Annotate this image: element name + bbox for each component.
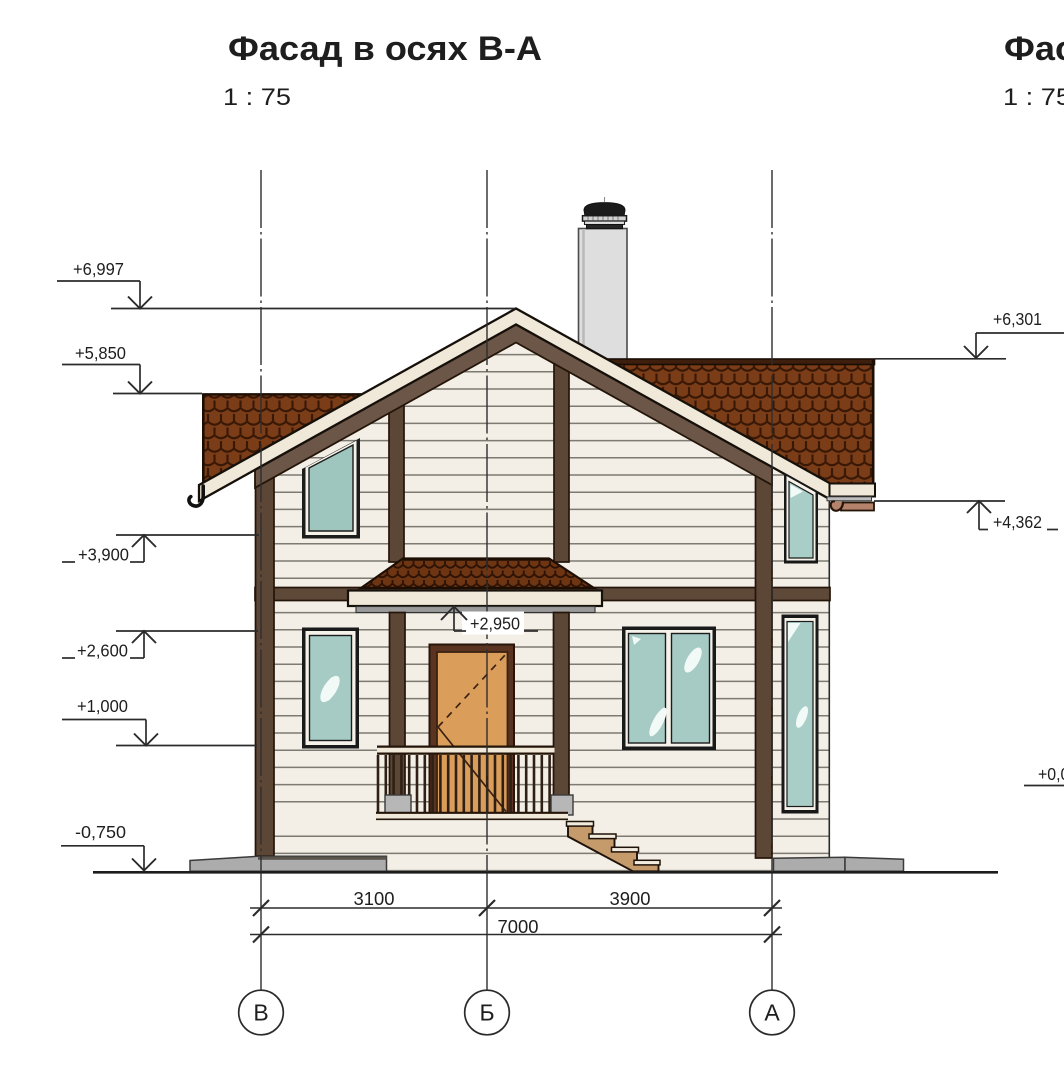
svg-text:+0,000: +0,000 [1038, 764, 1064, 784]
svg-text:3900: 3900 [610, 889, 651, 909]
svg-text:+3,900: +3,900 [78, 545, 129, 565]
svg-text:3100: 3100 [354, 889, 395, 909]
svg-text:-0,750: -0,750 [75, 822, 126, 842]
svg-text:1 : 75: 1 : 75 [1003, 84, 1064, 111]
svg-text:+6,301: +6,301 [993, 309, 1042, 329]
svg-text:+5,850: +5,850 [75, 343, 126, 363]
svg-text:7000: 7000 [498, 917, 539, 937]
svg-text:А: А [764, 1000, 780, 1026]
svg-text:+6,997: +6,997 [73, 259, 124, 279]
svg-text:+4,362: +4,362 [993, 512, 1042, 532]
svg-text:1 : 75: 1 : 75 [223, 84, 291, 111]
svg-text:Фасад в осях В-А: Фасад в осях В-А [228, 30, 542, 68]
svg-text:+2,950: +2,950 [470, 614, 520, 634]
svg-text:+1,000: +1,000 [77, 696, 128, 716]
svg-text:В: В [253, 1000, 268, 1026]
svg-text:Фасад в осях А-В: Фасад в осях А-В [1004, 30, 1064, 68]
svg-text:+2,600: +2,600 [77, 641, 128, 661]
svg-text:Б: Б [479, 1000, 494, 1026]
